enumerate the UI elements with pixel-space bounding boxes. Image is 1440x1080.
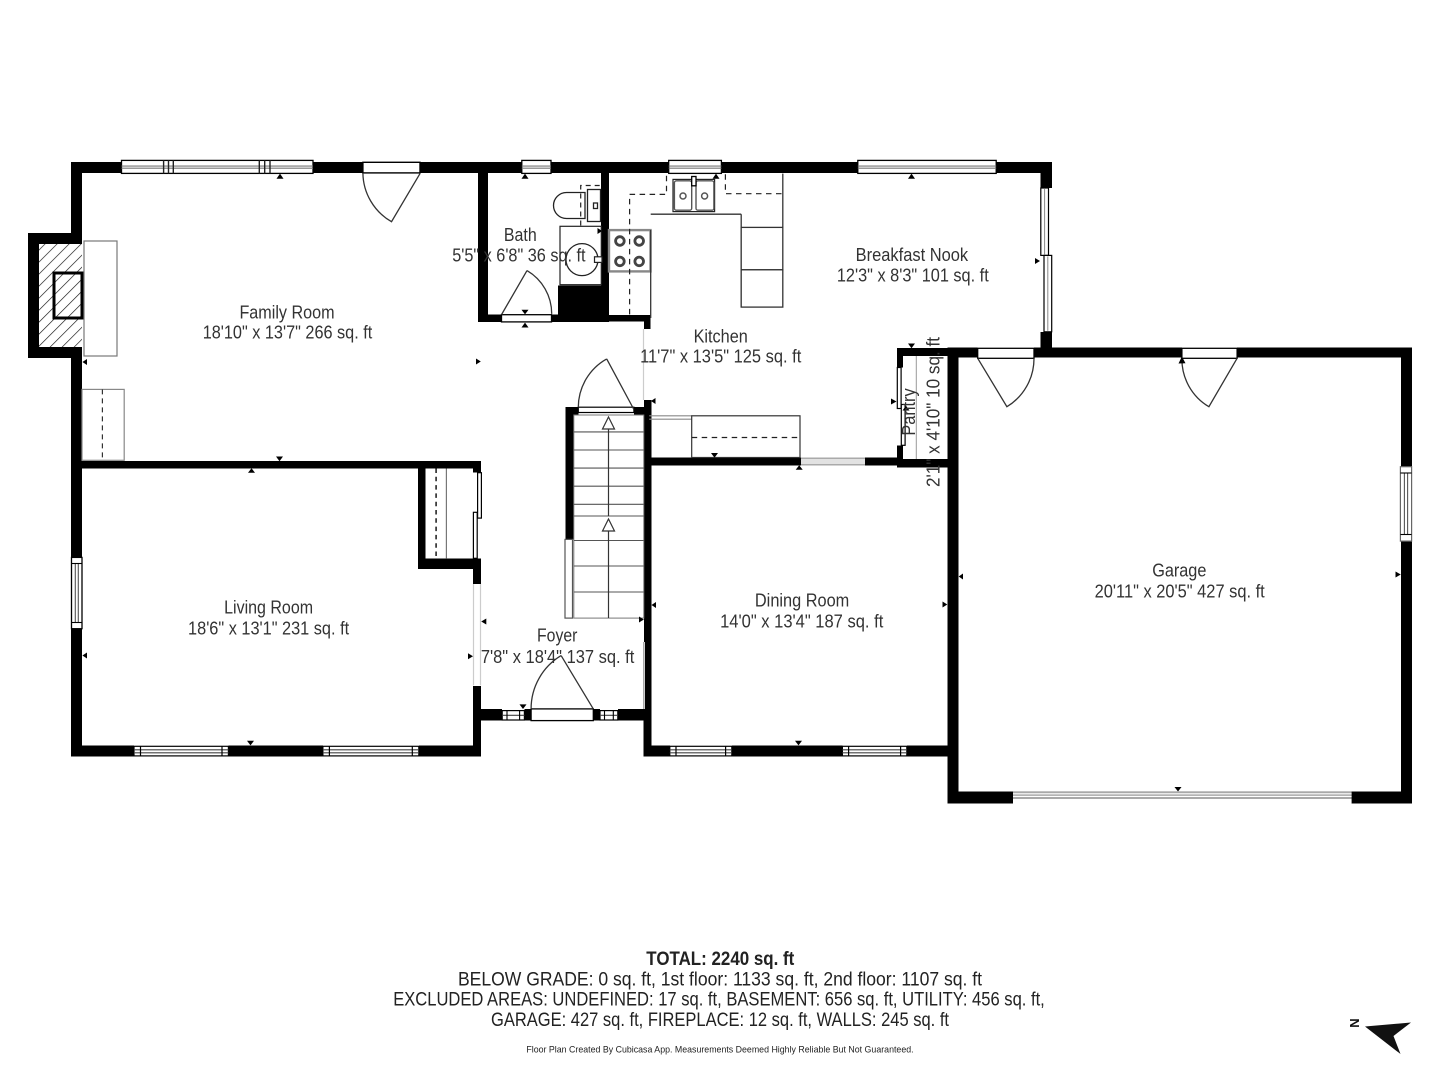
svg-text:Dining Room: Dining Room bbox=[755, 590, 849, 610]
svg-text:20'11" x 20'5" 427 sq. ft: 20'11" x 20'5" 427 sq. ft bbox=[1095, 581, 1265, 601]
svg-text:11'7" x 13'5" 125 sq. ft: 11'7" x 13'5" 125 sq. ft bbox=[640, 347, 801, 367]
svg-text:BELOW GRADE: 0 sq. ft, 1st flo: BELOW GRADE: 0 sq. ft, 1st floor: 1133 s… bbox=[458, 968, 983, 990]
svg-text:Family Room: Family Room bbox=[239, 303, 334, 323]
svg-text:GARAGE: 427 sq. ft, FIREPLACE:: GARAGE: 427 sq. ft, FIREPLACE: 12 sq. ft… bbox=[491, 1009, 949, 1031]
svg-text:Pantry: Pantry bbox=[899, 388, 919, 435]
svg-text:5'5" x 6'8" 36 sq. ft: 5'5" x 6'8" 36 sq. ft bbox=[452, 245, 585, 265]
svg-text:TOTAL: 2240 sq. ft: TOTAL: 2240 sq. ft bbox=[646, 948, 794, 970]
svg-text:Foyer: Foyer bbox=[537, 625, 577, 645]
svg-text:7'8" x 18'4" 137 sq. ft: 7'8" x 18'4" 137 sq. ft bbox=[481, 647, 635, 667]
svg-text:N: N bbox=[1347, 1018, 1362, 1027]
svg-text:Breakfast Nook: Breakfast Nook bbox=[856, 245, 969, 265]
svg-text:Living Room: Living Room bbox=[224, 597, 313, 617]
svg-text:2'1" x 4'10" 10 sq. ft: 2'1" x 4'10" 10 sq. ft bbox=[924, 337, 944, 487]
svg-text:18'10" x 13'7" 266 sq. ft: 18'10" x 13'7" 266 sq. ft bbox=[203, 323, 373, 343]
svg-text:Bath: Bath bbox=[504, 225, 537, 245]
svg-text:12'3" x 8'3" 101 sq. ft: 12'3" x 8'3" 101 sq. ft bbox=[837, 265, 989, 285]
svg-text:Garage: Garage bbox=[1152, 560, 1206, 580]
svg-text:Floor Plan Created By Cubicasa: Floor Plan Created By Cubicasa App. Meas… bbox=[526, 1045, 913, 1056]
svg-text:18'6" x 13'1" 231 sq. ft: 18'6" x 13'1" 231 sq. ft bbox=[188, 618, 349, 638]
svg-text:Kitchen: Kitchen bbox=[694, 326, 748, 346]
svg-text:EXCLUDED AREAS: UNDEFINED: 17: EXCLUDED AREAS: UNDEFINED: 17 sq. ft, BA… bbox=[393, 989, 1045, 1011]
svg-text:14'0" x 13'4" 187 sq. ft: 14'0" x 13'4" 187 sq. ft bbox=[720, 611, 883, 631]
